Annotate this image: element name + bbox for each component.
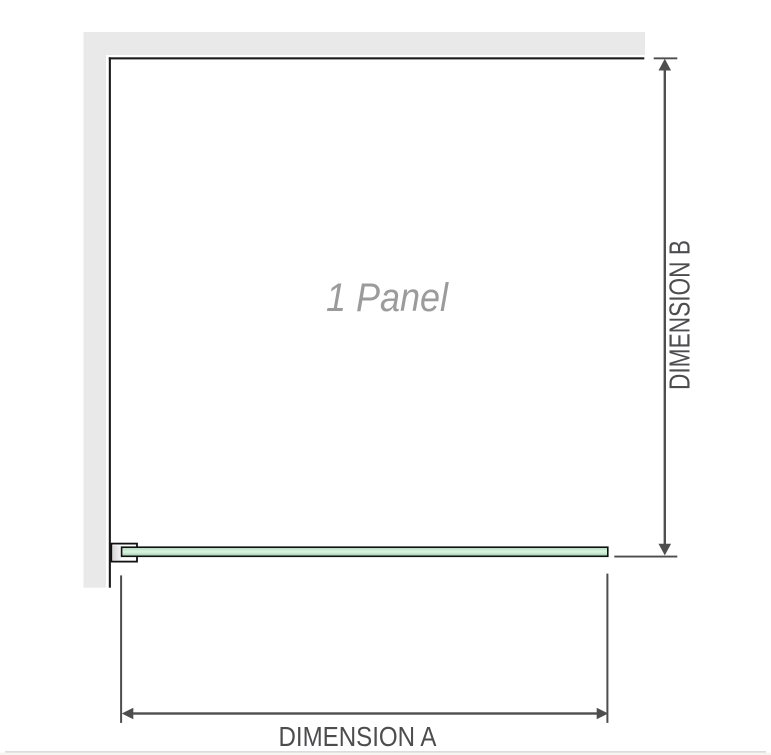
svg-text:DIMENSION B: DIMENSION B <box>664 240 696 390</box>
svg-text:1 Panel: 1 Panel <box>326 276 449 320</box>
svg-text:DIMENSION A: DIMENSION A <box>279 721 438 752</box>
